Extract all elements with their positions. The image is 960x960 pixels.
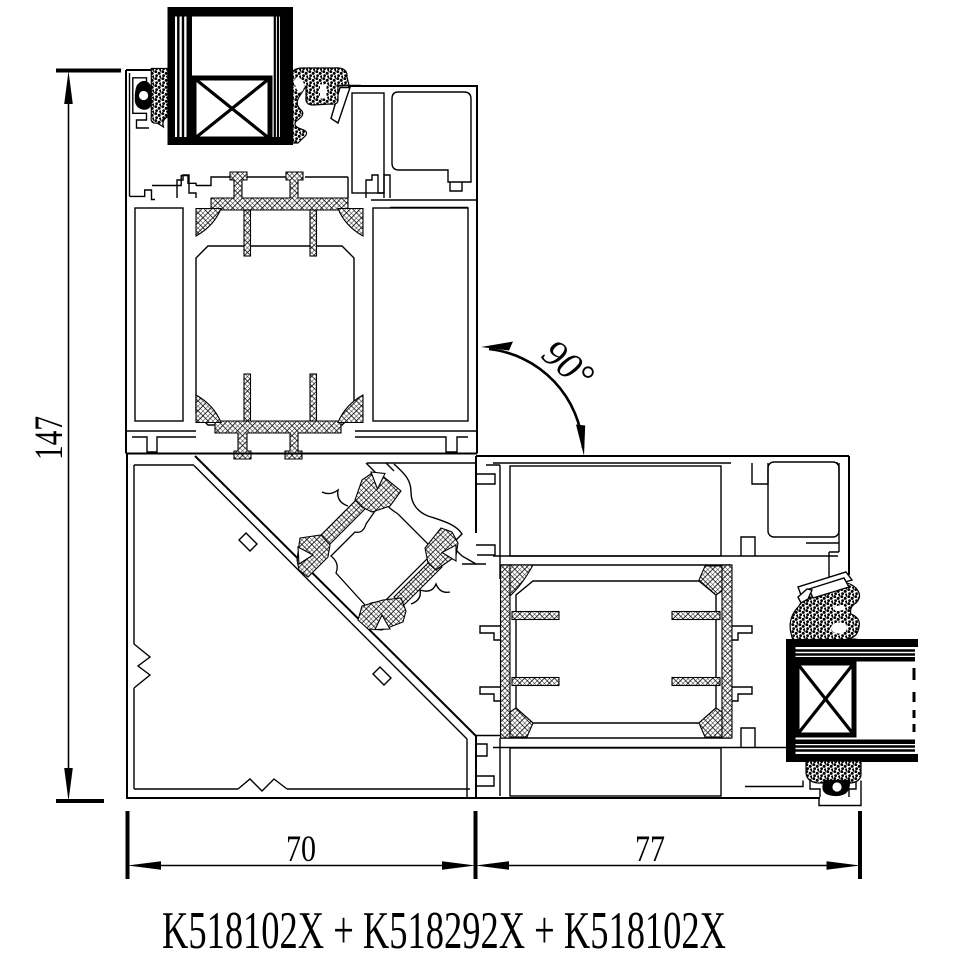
svg-text:77: 77 (635, 829, 665, 870)
svg-text:70: 70 (286, 829, 316, 870)
svg-text:K518102X + K518292X + K518102X: K518102X + K518292X + K518102X (162, 902, 726, 960)
svg-text:147: 147 (26, 416, 71, 460)
